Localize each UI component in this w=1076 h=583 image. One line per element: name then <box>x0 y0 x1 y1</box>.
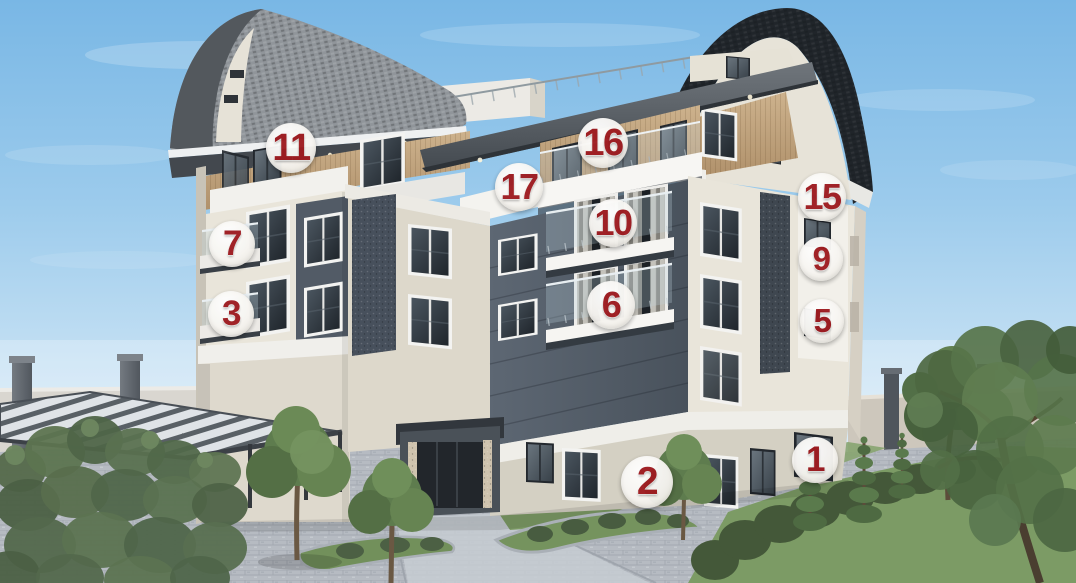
unit-marker-17[interactable]: 17 <box>495 163 543 211</box>
unit-marker-10[interactable]: 10 <box>589 199 637 247</box>
unit-marker-16[interactable]: 16 <box>578 118 628 168</box>
unit-marker-6[interactable]: 6 <box>587 281 635 329</box>
unit-marker-2[interactable]: 2 <box>621 456 673 508</box>
unit-marker-15[interactable]: 15 <box>798 173 846 221</box>
unit-marker-layer: 11161715107963512 <box>0 0 1076 583</box>
unit-marker-7[interactable]: 7 <box>209 221 255 267</box>
unit-marker-11[interactable]: 11 <box>266 123 316 173</box>
unit-marker-3[interactable]: 3 <box>208 291 254 337</box>
unit-marker-9[interactable]: 9 <box>799 237 843 281</box>
building-render: 11161715107963512 <box>0 0 1076 583</box>
unit-marker-5[interactable]: 5 <box>800 299 844 343</box>
unit-marker-1[interactable]: 1 <box>792 437 838 483</box>
